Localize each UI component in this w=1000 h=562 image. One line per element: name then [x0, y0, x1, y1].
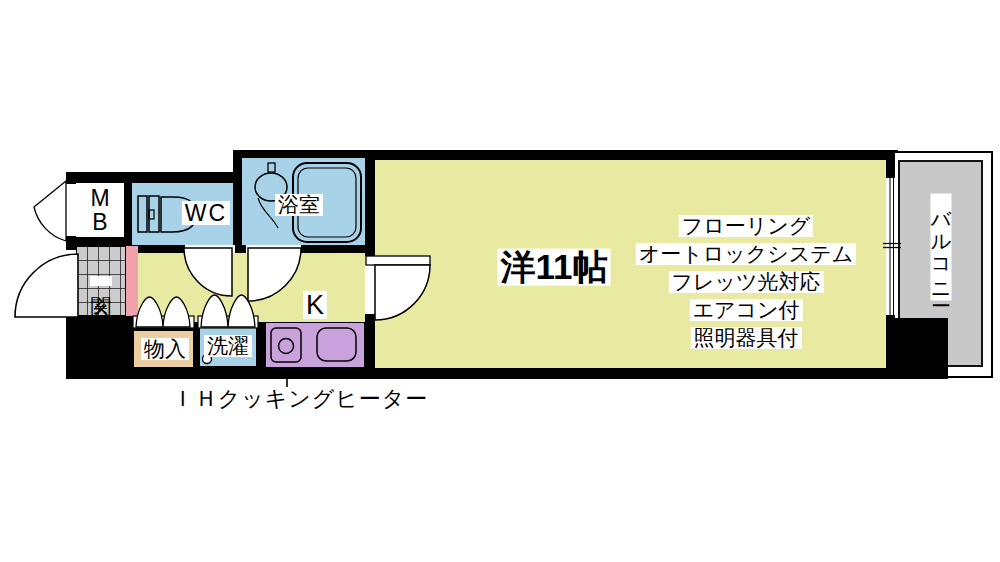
wc-door-swing [184, 248, 232, 296]
bifold-door-laundry [201, 295, 255, 327]
bath-door-swing [248, 248, 301, 301]
kitchen-door-swing [375, 265, 430, 320]
label-main-room: 洋11帖 [498, 249, 611, 286]
feature-item: オートロックシステム [636, 243, 856, 265]
mb-door-wedge [34, 181, 66, 241]
label-laundry: 洗濯 [204, 335, 252, 357]
ih-burner-icon [271, 328, 301, 362]
label-bathroom: 浴室 [275, 194, 323, 216]
feature-item: フローリング [679, 215, 813, 237]
label-storage: 物入 [141, 338, 189, 360]
kitchen-door-leaf [366, 256, 430, 265]
feature-item: エアコン付 [690, 299, 803, 321]
label-meter-box: M B [87, 186, 112, 234]
feature-item: フレッツ光対応 [669, 271, 824, 293]
feature-item: 照明器具付 [691, 327, 802, 349]
floor-plan: M B 玄関 WC 浴室 物入 洗濯 K 洋11帖 バルコニー ＩＨクッキングヒ… [0, 0, 1000, 562]
balcony-window [883, 178, 901, 315]
label-entrance: 玄関 [90, 276, 112, 286]
bifold-door-storage [136, 297, 190, 327]
entrance-door-swing [15, 254, 78, 317]
feature-list: フローリング オートロックシステム フレッツ光対応 エアコン付 照明器具付 [636, 215, 856, 349]
label-balcony: バルコニー [931, 194, 952, 301]
kitchen-sink-icon [317, 328, 356, 361]
label-ih-cooking-heater: ＩＨクッキングヒーター [169, 387, 432, 410]
label-kitchen: K [303, 291, 327, 319]
label-wc: WC [182, 201, 230, 225]
